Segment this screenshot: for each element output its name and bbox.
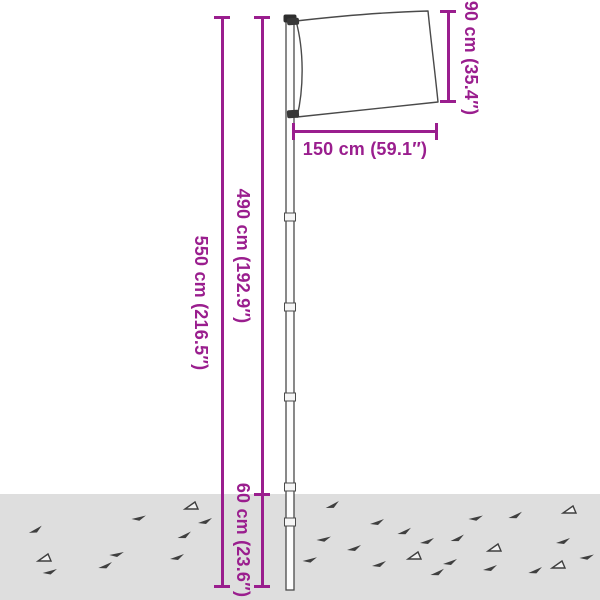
pole-joint [285,518,296,526]
ground-debris-mark [552,561,565,568]
ground-debris-mark [450,535,465,542]
ground-debris-mark [98,562,112,569]
pole-joint [285,303,296,311]
flag [296,11,438,117]
ground-debris-mark [443,559,457,565]
measure-total-height-line [221,18,224,588]
flag-clamp-bottom-icon [287,110,300,119]
ground-debris-mark [38,554,51,561]
measure-total-height-cap-bottom [214,585,230,588]
ground-debris-mark [563,506,576,513]
measure-total-height-label: 550 cm (216.5″) [190,236,212,371]
measure-flag-height-line [447,12,450,103]
ground-debris-mark [131,514,146,521]
ground-debris-mark [316,535,331,542]
ground-debris [28,501,594,576]
measure-in-ground-label: 60 cm (23.6″) [232,483,254,597]
ground-debris-mark [325,501,340,509]
measure-flag-width-line [293,130,437,133]
measure-in-ground-cap-bottom [254,585,270,588]
measure-above-ground-line [261,18,264,495]
measure-flag-height-cap-bottom [440,100,456,103]
flagpole-figure [0,0,600,600]
ground-debris-mark [185,502,198,509]
measure-flag-width-cap-right [435,123,438,140]
pole-joint [285,393,296,401]
ground-debris-mark [556,538,570,544]
measure-above-ground-cap-top [254,16,270,19]
ground-debris-mark [109,550,124,558]
ground-debris-mark [488,544,501,551]
measure-total-height-cap-top [214,16,230,19]
measure-flag-width-cap-left [292,123,295,140]
ground-debris-mark [508,512,522,519]
ground-debris-mark [420,538,434,544]
ground-debris-mark [528,567,542,574]
flag-clamp-top-icon [287,18,299,26]
pole-joint [285,483,296,491]
measure-flag-height-label: 90 cm (35.4″) [460,1,482,115]
ground-debris-mark [468,514,483,521]
ground-debris-mark [430,569,444,576]
ground-debris-mark [170,554,184,560]
ground-debris-mark [483,565,497,571]
ground-debris-mark [198,518,212,524]
ground-debris-mark [370,519,384,525]
ground-debris-mark [43,568,57,575]
measure-flag-height-cap-top [440,10,456,13]
dimension-diagram: 550 cm (216.5″) 490 cm (192.9″) 60 cm (2… [0,0,600,600]
ground-debris-mark [579,553,594,560]
pole-joint [285,213,296,221]
ground-debris-mark [347,545,361,551]
measure-flag-width-label: 150 cm (59.1″) [303,139,428,159]
measure-above-ground-label: 490 cm (192.9″) [232,189,254,324]
ground-debris-mark [397,528,411,535]
measure-in-ground-line [261,495,264,588]
ground-debris-mark [372,561,386,567]
ground-debris-mark [302,556,316,563]
ground-debris-mark [28,526,43,534]
ground-debris-mark [408,552,421,559]
ground-debris-mark [177,532,192,539]
